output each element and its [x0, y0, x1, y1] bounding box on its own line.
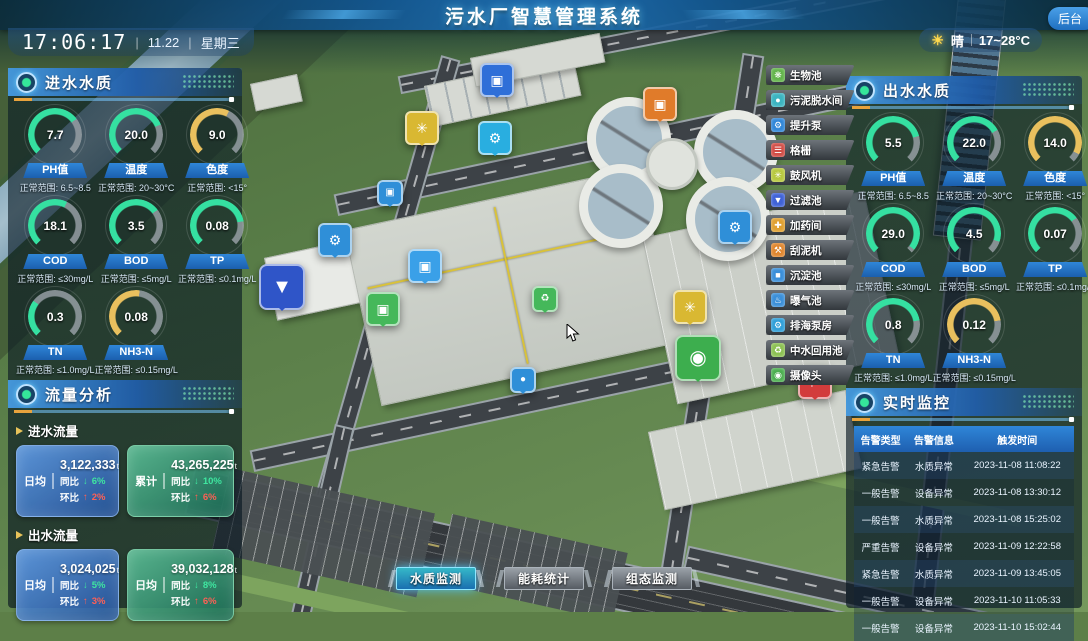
tab-scada-monitoring[interactable]: 组态监测	[612, 567, 692, 590]
filter-pool-icon: ▼	[771, 193, 785, 207]
gauge-label: BOD	[942, 262, 1006, 277]
facility-button-grid-screen[interactable]: ☰格栅	[766, 140, 855, 160]
lift-pump-icon: ⚙	[771, 118, 785, 132]
section-underline	[14, 98, 236, 101]
gauge-range: 正常范围: ≤30mg/L	[17, 272, 93, 285]
facility-label: 提升泵	[790, 118, 822, 133]
gauge-value: 0.07	[1028, 207, 1082, 260]
alarm-time: 2023-11-08 15:25:02	[961, 506, 1075, 533]
alarm-info: 设备异常	[907, 479, 960, 506]
inlet-quality-header: 进水水质	[8, 68, 242, 96]
outlet-quality-header: 出水水质	[846, 76, 1082, 104]
alarm-type: 严重告警	[854, 533, 907, 560]
temperature-range: 17~28°C	[979, 33, 1030, 48]
marker-pump-icon[interactable]: ⚙	[718, 210, 752, 244]
gauge-chroma: 9.0色度正常范围: <15°	[178, 108, 256, 194]
marker-blower-fan-icon[interactable]: ✳	[673, 290, 707, 324]
section-underline	[852, 418, 1076, 421]
marker-glyph: ▣	[490, 73, 503, 87]
gauge-value: 0.08	[109, 290, 163, 343]
app-header: 污水厂智慧管理系统	[0, 0, 1088, 30]
gauge-tp: 0.07TP正常范围: ≤0.1mg/L	[1016, 207, 1088, 293]
facility-label: 刮泥机	[790, 243, 822, 258]
facility-label: 摄像头	[790, 368, 822, 383]
mom-label: 环比	[171, 490, 190, 504]
flow-analysis-header: 流量分析	[8, 380, 242, 408]
flow-card-daily: 日均 3,122,333t 同比↓6% 环比↑2%	[16, 445, 119, 517]
facility-label: 曝气池	[790, 293, 822, 308]
card-period: 日均	[24, 473, 54, 489]
gauge-value: 0.3	[28, 290, 82, 343]
sludge-dewatering-icon: ●	[771, 93, 785, 107]
marker-filter-pool-icon[interactable]: ▼	[259, 264, 305, 310]
gauge-range: 正常范围: 6.5~8.5	[858, 189, 929, 202]
trend-down-icon: ↓	[194, 476, 199, 487]
divider: |	[188, 35, 191, 50]
gauge-range: 正常范围: ≤1.0mg/L	[16, 363, 94, 376]
mom-value: 3%	[92, 596, 106, 607]
inlet-flow-cards: 日均 3,122,333t 同比↓6% 环比↑2% 累计 43,265,225t…	[16, 445, 234, 517]
section-icon	[854, 80, 875, 101]
datetime-display: 17:06:17 | 11.22 | 星期三	[8, 28, 254, 56]
clock-date: 11.22	[148, 35, 180, 50]
gauge-label: COD	[861, 262, 925, 277]
marker-glyph: ✳	[684, 300, 696, 314]
gauge-nh3n: 0.08NH3-N正常范围: ≤0.15mg/L	[94, 290, 177, 376]
gauge-value: 20.0	[109, 108, 163, 161]
marker-reuse-pool-icon[interactable]: ▣	[366, 292, 400, 326]
gauge-label: 色度	[1023, 171, 1087, 186]
gauge-label: PH值	[861, 171, 925, 186]
alarm-info: 设备异常	[907, 533, 960, 560]
gauge-cod: 18.1COD正常范围: ≤30mg/L	[16, 199, 94, 285]
col-trigger-time: 触发时间	[961, 426, 1075, 452]
marker-lift-pump-icon[interactable]: ⚙	[478, 121, 512, 155]
clock-weekday: 星期三	[201, 33, 240, 52]
marker-tank-icon[interactable]: ▣	[377, 180, 403, 206]
alarm-row[interactable]: 一般告警设备异常2023-11-08 13:30:12	[854, 479, 1074, 506]
gauge-chroma: 14.0色度正常范围: <15°	[1016, 116, 1088, 202]
gauge-value: 14.0	[1028, 116, 1082, 169]
grid-screen-icon: ☰	[771, 143, 785, 157]
gauge-tn: 0.3TN正常范围: ≤1.0mg/L	[16, 290, 94, 376]
card-value: 3,122,333	[60, 458, 116, 472]
gauge-label: TN	[23, 345, 87, 360]
mom-label: 环比	[60, 594, 79, 608]
gauge-range: 正常范围: ≤0.1mg/L	[178, 272, 256, 285]
facility-button-dosing-room[interactable]: ✚加药间	[766, 215, 855, 235]
gauge-label: TP	[1023, 262, 1087, 277]
facility-button-camera[interactable]: ◉摄像头	[766, 365, 855, 385]
trend-down-icon: ↓	[83, 476, 88, 487]
sun-icon: ☀	[931, 32, 944, 49]
section-icon	[16, 384, 37, 405]
card-period: 累计	[135, 473, 165, 489]
mom-value: 6%	[203, 492, 217, 503]
gauge-range: 正常范围: 6.5~8.5	[20, 181, 91, 194]
trend-up-icon: ↑	[83, 596, 88, 607]
gauge-value: 0.08	[190, 199, 244, 252]
map-clarifier-hub	[646, 138, 698, 190]
facility-button-list: ❋生物池 ●污泥脱水间 ⚙提升泵 ☰格栅 ✳鼓风机 ▼过滤池 ✚加药间 ⚒刮泥机…	[766, 65, 855, 385]
section-icon	[854, 392, 875, 413]
gauge-range: 正常范围: ≤1.0mg/L	[854, 371, 932, 384]
yoy-value: 10%	[203, 476, 222, 487]
col-alarm-type: 告警类型	[854, 426, 907, 452]
outlet-flow-label: 出水流量	[16, 525, 234, 544]
bottom-tab-bar: 水质监测 能耗统计 组态监测	[0, 567, 1088, 590]
weather-condition: 晴	[951, 31, 964, 50]
page-title: 污水厂智慧管理系统	[445, 2, 643, 29]
facility-label: 排海泵房	[790, 318, 832, 333]
marker-glyph: ⚙	[729, 220, 742, 234]
aeration-pool-icon: ♨	[771, 293, 785, 307]
gauge-value: 22.0	[947, 116, 1001, 169]
gauge-value: 9.0	[190, 108, 244, 161]
alarm-time: 2023-11-08 13:30:12	[961, 479, 1075, 506]
facility-button-reclaimed-water-pool[interactable]: ♻中水回用池	[766, 340, 855, 360]
inlet-gauges: 7.7PH值正常范围: 6.5~8.5 20.0温度正常范围: 20~30°C …	[16, 108, 234, 376]
gauge-label: NH3-N	[104, 345, 168, 360]
facility-label: 沉淀池	[790, 268, 822, 283]
alarm-row[interactable]: 紧急告警水质异常2023-11-08 11:08:22	[854, 452, 1074, 479]
facility-button-sedimentation-pool[interactable]: ■沉淀池	[766, 265, 855, 285]
yoy-value: 6%	[92, 476, 106, 487]
gauge-label: PH值	[23, 163, 87, 178]
reclaimed-water-pool-icon: ♻	[771, 343, 785, 357]
alarm-time: 2023-11-08 11:08:22	[961, 452, 1075, 479]
gauge-nh3n: 0.12NH3-N正常范围: ≤0.15mg/L	[932, 298, 1015, 384]
facility-button-aeration-pool[interactable]: ♨曝气池	[766, 290, 855, 310]
alarm-type: 紧急告警	[854, 452, 907, 479]
divider: |	[135, 35, 138, 50]
marker-scraper-icon[interactable]: ▣	[643, 87, 677, 121]
group-label: 进水流量	[28, 421, 78, 440]
marker-bio-pool-icon[interactable]: ♻	[532, 286, 558, 312]
gauge-label: 温度	[104, 163, 168, 178]
marker-glyph: ▣	[653, 97, 666, 111]
left-panel: 进水水质 7.7PH值正常范围: 6.5~8.5 20.0温度正常范围: 20~…	[8, 68, 242, 608]
facility-label: 加药间	[790, 218, 822, 233]
dots-decoration	[1022, 82, 1074, 98]
map-parking-lot	[437, 514, 628, 612]
marker-glyph: ▣	[418, 259, 431, 273]
facility-label: 过滤池	[790, 193, 822, 208]
alarm-info: 设备异常	[907, 587, 960, 614]
alarm-info: 水质异常	[907, 506, 960, 533]
trend-up-icon: ↑	[194, 492, 199, 503]
gauge-value: 3.5	[109, 199, 163, 252]
marker-sedimentation-icon[interactable]: ▣	[408, 249, 442, 283]
facility-button-blower[interactable]: ✳鼓风机	[766, 165, 855, 185]
map-pipe	[494, 207, 529, 364]
alarm-row[interactable]: 一般告警水质异常2023-11-08 15:25:02	[854, 506, 1074, 533]
gauge-range: 正常范围: ≤30mg/L	[855, 280, 931, 293]
weather-display: ☀ 晴 17~28°C	[919, 28, 1042, 52]
marker-glyph: ⚙	[489, 131, 502, 145]
backend-button[interactable]: 后台	[1048, 7, 1088, 30]
gauge-ph: 7.7PH值正常范围: 6.5~8.5	[16, 108, 94, 194]
inlet-flow-label: 进水流量	[16, 421, 234, 440]
gauge-label: COD	[23, 254, 87, 269]
gauge-bod: 3.5BOD正常范围: ≤5mg/L	[94, 199, 177, 285]
header-wing-decoration	[281, 10, 406, 19]
alarm-time: 2023-11-10 15:02:44	[961, 614, 1075, 641]
facility-button-lift-pump[interactable]: ⚙提升泵	[766, 115, 855, 135]
dots-decoration	[182, 74, 234, 90]
card-value: 43,265,225	[171, 458, 234, 472]
map-building	[648, 390, 862, 510]
alarm-time: 2023-11-09 12:22:58	[961, 533, 1075, 560]
marker-blower-fan-icon[interactable]: ✳	[405, 111, 439, 145]
tab-water-quality-monitoring[interactable]: 水质监测	[396, 567, 476, 590]
section-title: 出水水质	[883, 80, 951, 101]
gauge-range: 正常范围: <15°	[187, 181, 247, 194]
right-panel: 出水水质 5.5PH值正常范围: 6.5~8.5 22.0温度正常范围: 20~…	[846, 76, 1082, 608]
facility-label: 格栅	[790, 143, 811, 158]
alarm-info: 设备异常	[907, 614, 960, 641]
trend-up-icon: ↑	[83, 492, 88, 503]
gauge-bod: 4.5BOD正常范围: ≤5mg/L	[932, 207, 1015, 293]
mom-value: 2%	[92, 492, 106, 503]
sea-discharge-pump-icon: ⚙	[771, 318, 785, 332]
alarm-table-header: 告警类型 告警信息 触发时间	[854, 426, 1074, 452]
col-alarm-info: 告警信息	[907, 426, 960, 452]
dots-decoration	[1022, 394, 1074, 410]
gauge-range: 正常范围: 20~30°C	[98, 181, 174, 194]
alarm-type: 一般告警	[854, 614, 907, 641]
section-title: 进水水质	[45, 72, 113, 93]
facility-button-sea-discharge-pump[interactable]: ⚙排海泵房	[766, 315, 855, 335]
section-title: 流量分析	[45, 384, 113, 405]
section-underline	[852, 106, 1076, 109]
gauge-label: 色度	[185, 163, 249, 178]
gauge-label: BOD	[104, 254, 168, 269]
marker-glyph: ●	[520, 375, 526, 385]
alarm-time: 2023-11-10 11:05:33	[961, 587, 1075, 614]
gauge-value: 0.8	[866, 298, 920, 351]
header-wing-decoration	[681, 10, 806, 19]
alarm-row[interactable]: 一般告警设备异常2023-11-10 11:05:33	[854, 587, 1074, 614]
gauge-ph: 5.5PH值正常范围: 6.5~8.5	[854, 116, 932, 202]
mom-label: 环比	[171, 594, 190, 608]
marker-dewatering-icon[interactable]: ▣	[480, 63, 514, 97]
gauge-range: 正常范围: ≤0.15mg/L	[932, 371, 1015, 384]
facility-button-sludge-dewatering[interactable]: ●污泥脱水间	[766, 90, 855, 110]
gauge-value: 4.5	[947, 207, 1001, 260]
alarm-type: 一般告警	[854, 506, 907, 533]
divider	[971, 34, 972, 46]
facility-button-mud-scraper[interactable]: ⚒刮泥机	[766, 240, 855, 260]
camera-icon: ◉	[771, 368, 785, 382]
mud-scraper-icon: ⚒	[771, 243, 785, 257]
alarm-type: 一般告警	[854, 479, 907, 506]
monitoring-header: 实时监控	[846, 388, 1082, 416]
gauge-label: NH3-N	[942, 353, 1006, 368]
section-underline	[14, 410, 236, 413]
trend-up-icon: ↑	[194, 596, 199, 607]
flow-card-total: 累计 43,265,225t 同比↓10% 环比↑6%	[127, 445, 234, 517]
marker-glyph: ⚙	[329, 233, 342, 247]
facility-button-filter-pool[interactable]: ▼过滤池	[766, 190, 855, 210]
marker-glyph: ◉	[689, 348, 706, 368]
facility-label: 生物池	[790, 68, 822, 83]
yoy-label: 同比	[60, 474, 79, 488]
gauge-label: 温度	[942, 171, 1006, 186]
facility-button-bio-pool[interactable]: ❋生物池	[766, 65, 855, 85]
marker-glyph: ▣	[376, 302, 389, 316]
marker-camera-icon[interactable]: ◉	[675, 335, 721, 381]
alarm-row[interactable]: 一般告警设备异常2023-11-10 15:02:44	[854, 614, 1074, 641]
mom-label: 环比	[60, 490, 79, 504]
mom-value: 6%	[203, 596, 217, 607]
gauge-range: 正常范围: ≤0.1mg/L	[1016, 280, 1088, 293]
facility-label: 鼓风机	[790, 168, 822, 183]
alarm-info: 水质异常	[907, 452, 960, 479]
marker-drop-icon[interactable]: ●	[510, 367, 536, 393]
gauge-temperature: 22.0温度正常范围: 20~30°C	[932, 116, 1015, 202]
gauge-cod: 29.0COD正常范围: ≤30mg/L	[854, 207, 932, 293]
clock-time: 17:06:17	[22, 30, 126, 54]
card-unit: t	[235, 461, 237, 471]
alarm-type: 一般告警	[854, 587, 907, 614]
alarm-row[interactable]: 严重告警设备异常2023-11-09 12:22:58	[854, 533, 1074, 560]
gauge-tp: 0.08TP正常范围: ≤0.1mg/L	[178, 199, 256, 285]
sedimentation-pool-icon: ■	[771, 268, 785, 282]
dots-decoration	[182, 386, 234, 402]
marker-glyph: ▼	[272, 277, 292, 297]
blower-icon: ✳	[771, 168, 785, 182]
alarm-table: 告警类型 告警信息 触发时间 紧急告警水质异常2023-11-08 11:08:…	[854, 426, 1074, 641]
facility-label: 污泥脱水间	[790, 93, 843, 108]
arrow-right-icon	[16, 531, 23, 539]
gauge-temperature: 20.0温度正常范围: 20~30°C	[94, 108, 177, 194]
group-label: 出水流量	[28, 525, 78, 544]
gauge-label: TN	[861, 353, 925, 368]
section-title: 实时监控	[883, 392, 951, 413]
gauge-range: 正常范围: ≤0.15mg/L	[94, 363, 177, 376]
gauge-range: 正常范围: <15°	[1025, 189, 1085, 202]
marker-glyph: ▣	[385, 188, 394, 198]
gauge-value: 29.0	[866, 207, 920, 260]
gauge-value: 5.5	[866, 116, 920, 169]
tab-energy-statistics[interactable]: 能耗统计	[504, 567, 584, 590]
gauge-tn: 0.8TN正常范围: ≤1.0mg/L	[854, 298, 932, 384]
outlet-gauges: 5.5PH值正常范围: 6.5~8.5 22.0温度正常范围: 20~30°C …	[854, 116, 1074, 384]
gauge-value: 7.7	[28, 108, 82, 161]
bio-pool-icon: ❋	[771, 68, 785, 82]
card-unit: t	[117, 461, 119, 471]
gauge-range: 正常范围: ≤5mg/L	[939, 280, 1010, 293]
arrow-right-icon	[16, 427, 23, 435]
marker-pump-icon[interactable]: ⚙	[318, 223, 352, 257]
gauge-value: 0.12	[947, 298, 1001, 351]
gauge-label: TP	[185, 254, 249, 269]
dosing-room-icon: ✚	[771, 218, 785, 232]
facility-label: 中水回用池	[790, 343, 843, 358]
section-icon	[16, 72, 37, 93]
gauge-range: 正常范围: 20~30°C	[936, 189, 1012, 202]
gauge-range: 正常范围: ≤5mg/L	[101, 272, 172, 285]
marker-glyph: ✳	[416, 121, 428, 135]
gauge-value: 18.1	[28, 199, 82, 252]
marker-glyph: ♻	[541, 294, 550, 304]
yoy-label: 同比	[171, 474, 190, 488]
